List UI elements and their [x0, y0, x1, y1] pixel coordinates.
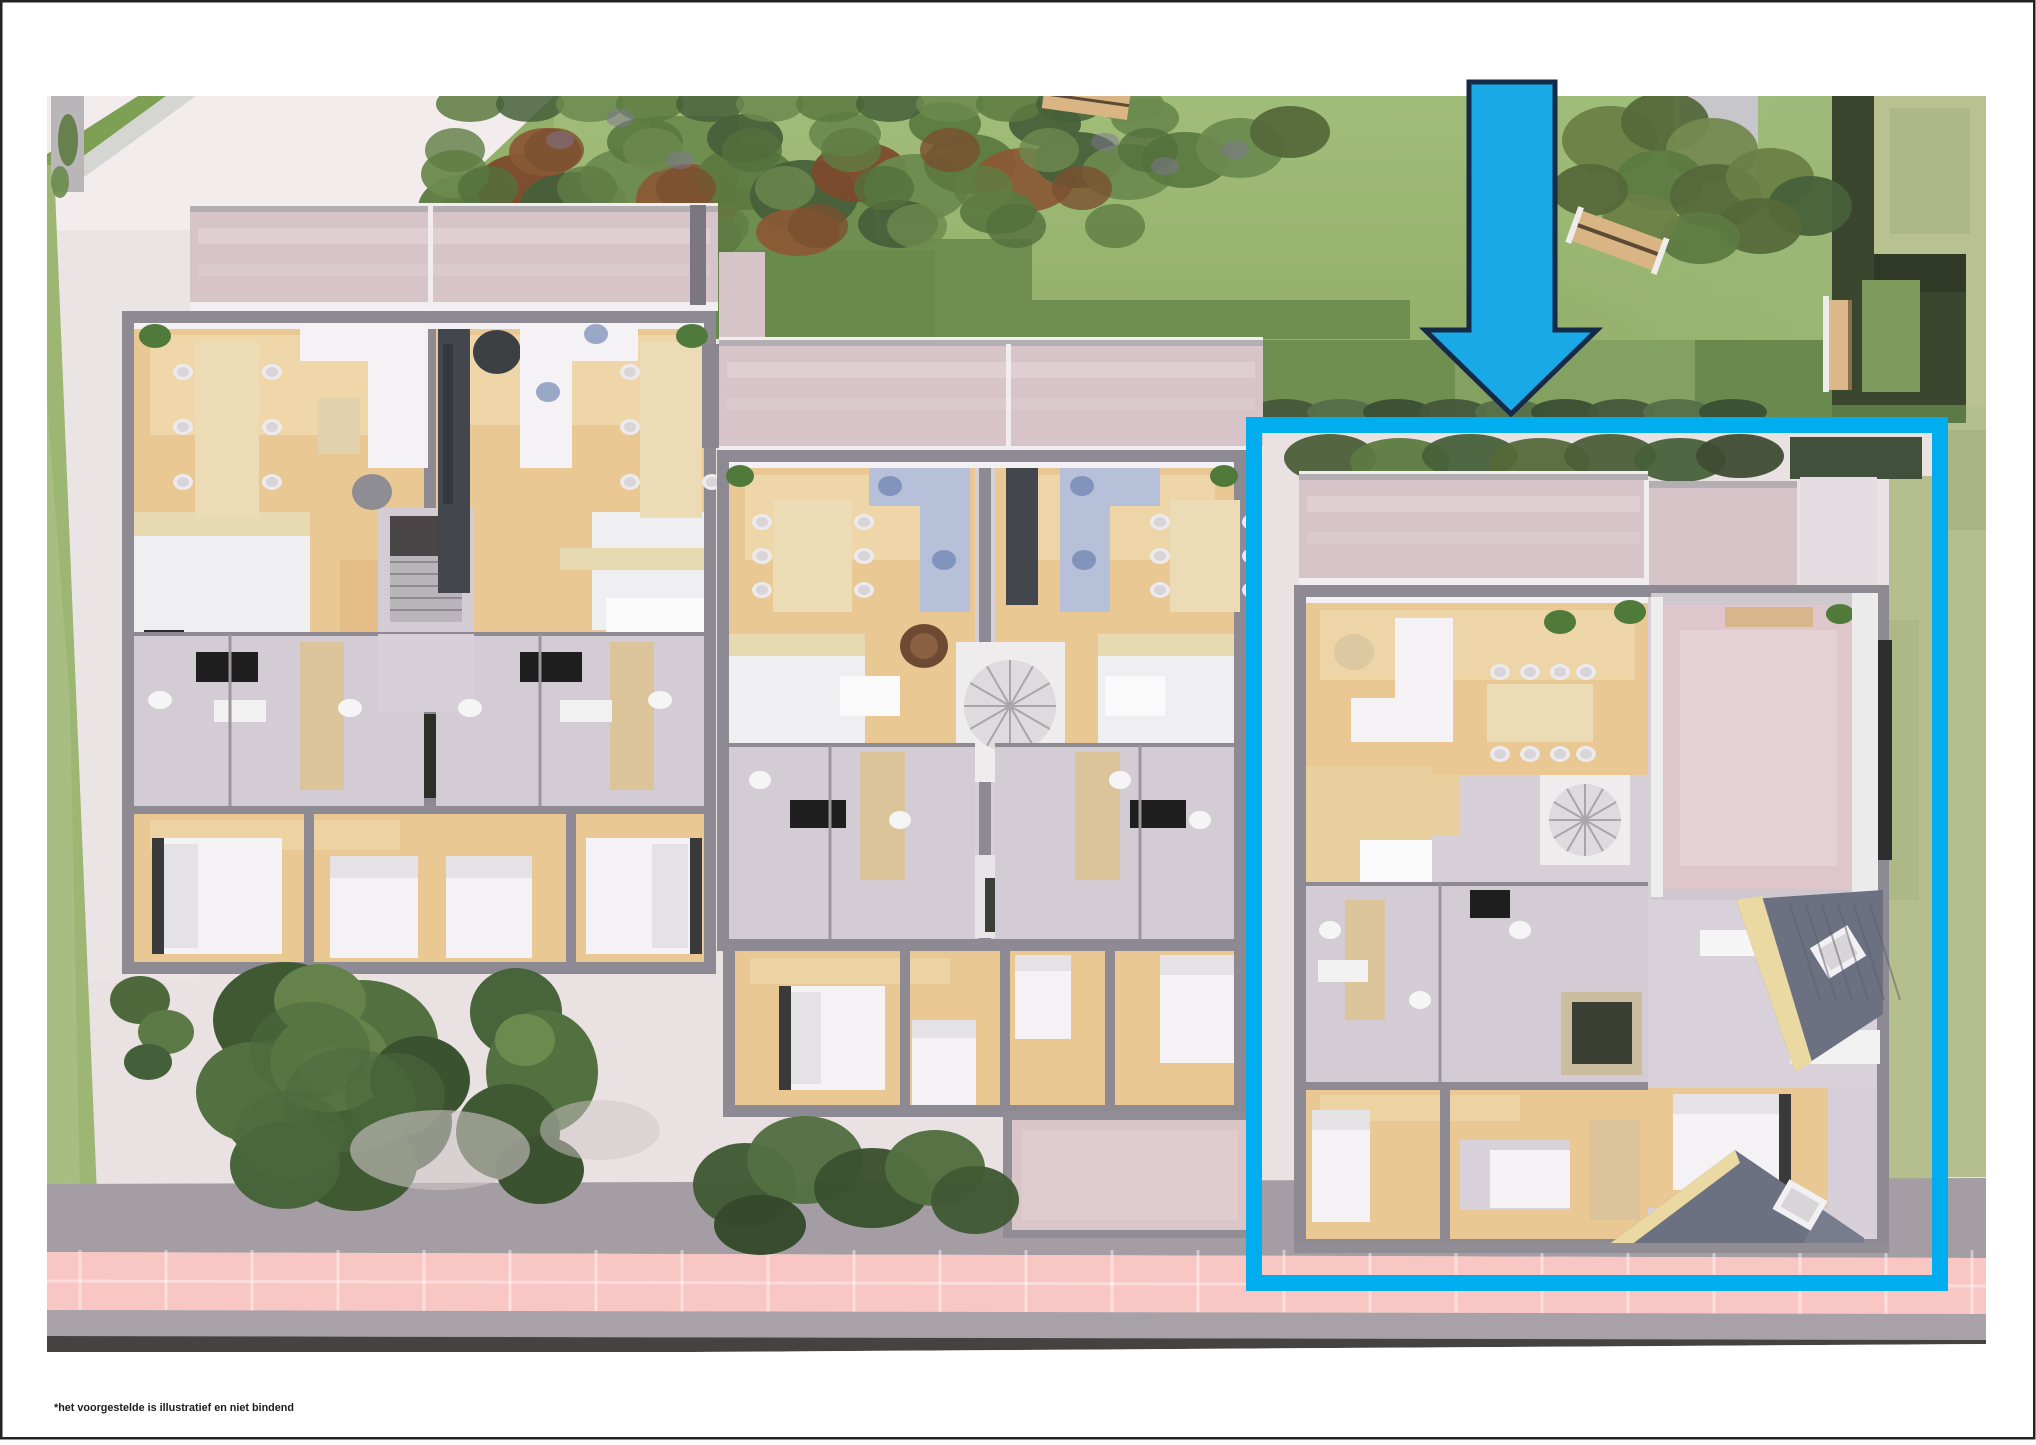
- svg-text:*het voorgestelde is illustrat: *het voorgestelde is illustratief en nie…: [54, 1402, 294, 1414]
